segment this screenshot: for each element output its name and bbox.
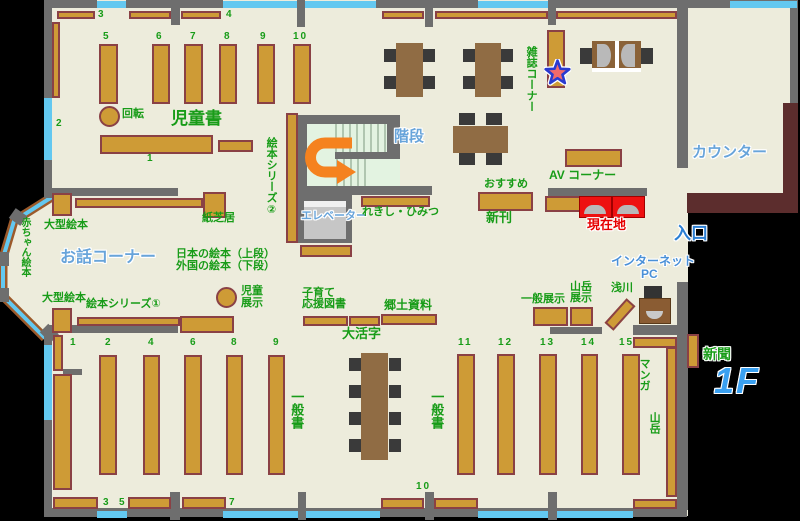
label-number: 3 [103,497,109,508]
map-stand-arc [617,205,639,214]
shelf-mountain-wall [666,347,677,497]
shelf-top-4b [382,11,424,19]
pc-monitor [644,286,662,298]
sofa-divider [615,41,619,70]
label-story-corner: お話コーナー [60,250,156,266]
label-number: 7 [190,31,196,42]
window-left-lower [44,345,52,420]
shelf-av [565,149,622,167]
rotating-rack [99,106,120,127]
sofa-cushion-right [621,44,635,67]
label-internet-1: インターネット [611,255,695,267]
label-stairs: 階段 [394,129,424,144]
label-japanese-picture: 日本の絵本（上段） [176,248,275,260]
pillar-top-3 [425,0,433,27]
shelf-general-5 [128,497,171,509]
shelf-kamishibai-long [75,198,203,208]
wall-pc-bar [633,325,687,335]
elevator-door [304,201,346,207]
shelf-top-6 [556,11,677,19]
shelf-top-3a [57,11,95,19]
chair [349,439,361,452]
label-history-secrets: れきし・ひみつ [362,206,439,218]
shelf-children-7 [184,44,203,104]
sofa-cushion-left [597,44,611,67]
shelf-picture-series-1 [77,317,180,326]
shelf-general-14 [581,354,598,475]
shelf-children-2 [52,22,60,98]
window-top-3 [478,1,548,8]
label-number: 12 [498,337,513,348]
label-number: 4 [226,9,232,20]
window-top-1 [97,1,126,8]
chair [423,49,435,62]
label-picture-series-1: 絵本シリーズ① [86,298,161,310]
shelf-parenting [303,316,348,326]
shelf-general-wall [53,374,72,490]
chair [349,358,361,371]
label-elevator: エレベーター [301,211,367,222]
shelf-mountain-display [570,307,593,326]
label-counter: カウンター [692,145,767,160]
shelf-picture-series-1b [180,316,234,333]
shelf-general-10b [434,498,478,509]
sofa-base [592,68,641,72]
chair [486,113,502,125]
pillar-top-2 [297,0,305,27]
label-baby-picture: 赤ちゃん絵本 [19,217,30,277]
label-number: 6 [190,337,196,348]
floor-counter-room [688,8,798,213]
label-number: 13 [540,337,555,348]
shelf-large-print [349,316,380,326]
label-number: 4 [148,337,154,348]
chair [384,49,396,62]
shelf-general-1 [53,335,63,371]
counter-desk-horizontal [687,193,798,213]
label-number: 7 [229,497,235,508]
shelf-general-11 [457,354,475,475]
sofa-armrest-right [641,48,653,64]
label-large-print: 大活字 [342,327,381,341]
shelf-picture-series-2 [286,113,298,243]
map-stand-arc [584,205,606,214]
wall-top-1 [44,0,97,8]
shelf-new-arrivals [478,192,533,211]
shelf-general-13 [539,354,557,475]
label-you-are-here: 現在地 [587,218,626,231]
shelf-children-1b [218,140,253,152]
pillar-bottom-3 [425,492,434,520]
reading-table-3 [453,126,508,153]
shelf-children-10 [293,44,311,104]
shelf-av-small [545,196,581,212]
window-top-4 [730,1,797,8]
label-asakawa: 浅川 [611,282,633,294]
reading-table-1 [396,43,423,97]
chair [501,76,513,89]
shelf-general-9 [268,355,285,475]
shelf-general-display [533,307,568,326]
label-parenting-2: 応援図書 [302,298,346,310]
label-new-arrivals: 新刊 [486,211,512,225]
label-number: 3 [98,9,104,20]
shelf-children-9 [257,44,275,104]
shelf-newspaper [687,334,699,368]
pillar-top-4 [548,0,556,25]
counter-desk-vertical [783,103,798,195]
shelf-general-10a [381,498,424,509]
pc-desk [639,298,671,324]
label-number: 9 [273,337,279,348]
pillar-bottom-1 [170,492,180,520]
shelf-general-3 [53,497,98,509]
window-bottom-1 [97,511,127,518]
shelf-children-1 [100,135,213,154]
chair [459,153,475,165]
library-floor-map: 3 4 5 6 7 8 9 10 2 回転 児童書 1 絵本シリーズ② 紙芝居 … [0,0,800,521]
label-number: 2 [105,337,111,348]
label-picture-series-2: 絵本シリーズ② [265,137,277,216]
label-general-display: 一般展示 [521,293,565,305]
label-number: 10 [293,31,308,42]
wall-right-upper [677,0,688,168]
wall-av-bar [548,188,647,196]
shelf-general-6 [184,355,202,475]
shelf-large-picture-top [52,193,72,216]
chair [459,113,475,125]
shelf-general-8 [226,355,243,475]
wall-display-bar [550,327,602,334]
shelf-general-12 [497,354,515,475]
label-general-books-left: 一般書 [289,390,303,429]
label-kamishibai: 紙芝居 [202,212,235,224]
floor-badge: 1F [714,363,760,399]
label-number: 8 [231,337,237,348]
children-display-table [216,287,237,308]
chair [463,76,475,89]
chair [389,358,401,371]
label-local-materials: 郷土資料 [384,299,432,312]
label-large-picture-bottom: 大型絵本 [42,292,86,304]
study-table [361,353,388,460]
label-large-picture-top: 大型絵本 [44,219,88,231]
label-foreign-picture: 外国の絵本（下段） [176,260,275,272]
shelf-large-picture-bottom [52,308,72,333]
label-number: 9 [260,31,266,42]
label-magazine-corner: 雑誌コーナー [525,46,537,112]
shelf-children-5 [99,44,118,104]
label-children-books: 児童書 [171,110,222,129]
shelf-general-4 [143,355,160,475]
pillar-bottom-2 [298,492,306,520]
label-children-display-1: 児童 [241,285,263,297]
chair [389,439,401,452]
shelf-children-8 [219,44,237,104]
pillar-bottom-4 [548,492,557,520]
label-entrance: 入口 [674,225,708,242]
label-number: 10 [416,481,431,492]
label-number: 1 [147,153,153,164]
chair [463,49,475,62]
shelf-top-3b [129,11,171,19]
you-are-here-star-icon [544,59,571,86]
label-children-display-2: 展示 [241,297,263,309]
label-rotation: 回転 [122,108,144,120]
label-number: 1 [70,337,76,348]
wall-right-outer [790,8,798,103]
reading-table-2 [475,43,501,97]
shelf-general-2 [99,355,117,475]
shelf-top-5 [435,11,548,19]
shelf-children-6 [152,44,170,104]
chair [423,76,435,89]
label-general-books-right: 一般書 [429,390,443,429]
chair [486,153,502,165]
chair [389,412,401,425]
label-number: 11 [458,337,473,348]
label-number: 6 [156,31,162,42]
sofa-armrest-left [580,48,592,64]
chair [384,76,396,89]
shelf-under-elevator [300,245,352,257]
map-stand-left [579,196,612,218]
label-mountain-display-2: 展示 [570,292,592,304]
shelf-top-4a [181,11,221,19]
chair [389,385,401,398]
wall-top-4 [548,0,690,8]
wall-right-lower [677,282,688,510]
label-number: 2 [56,118,62,129]
chair [501,49,513,62]
label-number: 15 [619,337,634,348]
label-manga: マンガ [638,358,650,391]
window-left-upper [44,98,52,160]
shelf-local-materials [381,314,437,325]
label-internet-2: PC [641,268,658,280]
label-number: 14 [581,337,596,348]
pillar-top-1 [171,0,180,25]
label-mountain: 山岳 [648,412,660,434]
label-number: 5 [119,497,125,508]
label-number: 5 [103,31,109,42]
chair [349,412,361,425]
map-stand-right [612,196,645,218]
label-recommended: おすすめ [484,178,528,190]
label-av-corner: AV コーナー [549,169,616,182]
shelf-bottom-right [633,499,677,509]
chair [349,385,361,398]
label-number: 8 [224,31,230,42]
shelf-general-7 [182,497,226,509]
stairs [298,115,400,196]
pc-chair-arc [646,311,663,319]
